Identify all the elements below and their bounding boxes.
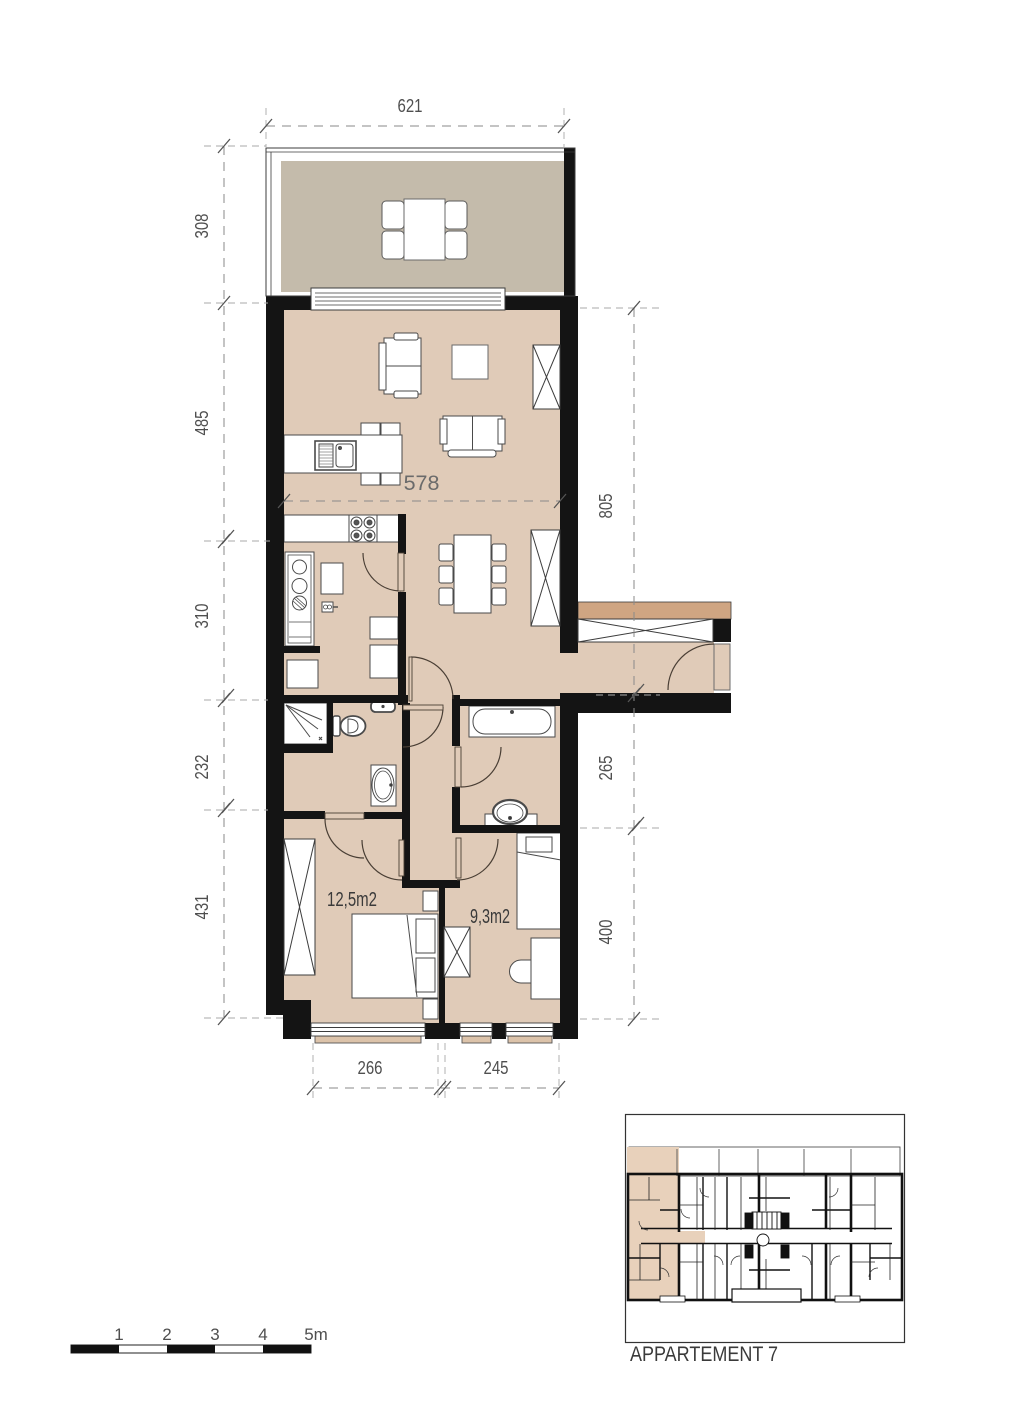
svg-text:2: 2 [162, 1325, 171, 1344]
svg-text:578: 578 [404, 471, 440, 495]
svg-text:4: 4 [258, 1325, 267, 1344]
svg-text:245: 245 [484, 1057, 509, 1078]
svg-text:232: 232 [191, 755, 212, 780]
svg-text:266: 266 [358, 1057, 383, 1078]
svg-text:1: 1 [114, 1325, 123, 1344]
svg-text:APPARTEMENT 7: APPARTEMENT 7 [630, 1343, 778, 1366]
svg-text:400: 400 [595, 920, 616, 945]
svg-text:265: 265 [595, 756, 616, 781]
svg-text:431: 431 [191, 895, 212, 920]
svg-text:310: 310 [191, 604, 212, 629]
svg-text:5m: 5m [304, 1325, 328, 1344]
svg-text:3: 3 [210, 1325, 219, 1344]
svg-text:308: 308 [191, 214, 212, 239]
svg-text:9,3m2: 9,3m2 [470, 906, 510, 928]
svg-text:621: 621 [398, 95, 423, 116]
svg-text:12,5m2: 12,5m2 [327, 889, 377, 911]
svg-text:485: 485 [191, 411, 212, 436]
svg-text:805: 805 [595, 494, 616, 519]
